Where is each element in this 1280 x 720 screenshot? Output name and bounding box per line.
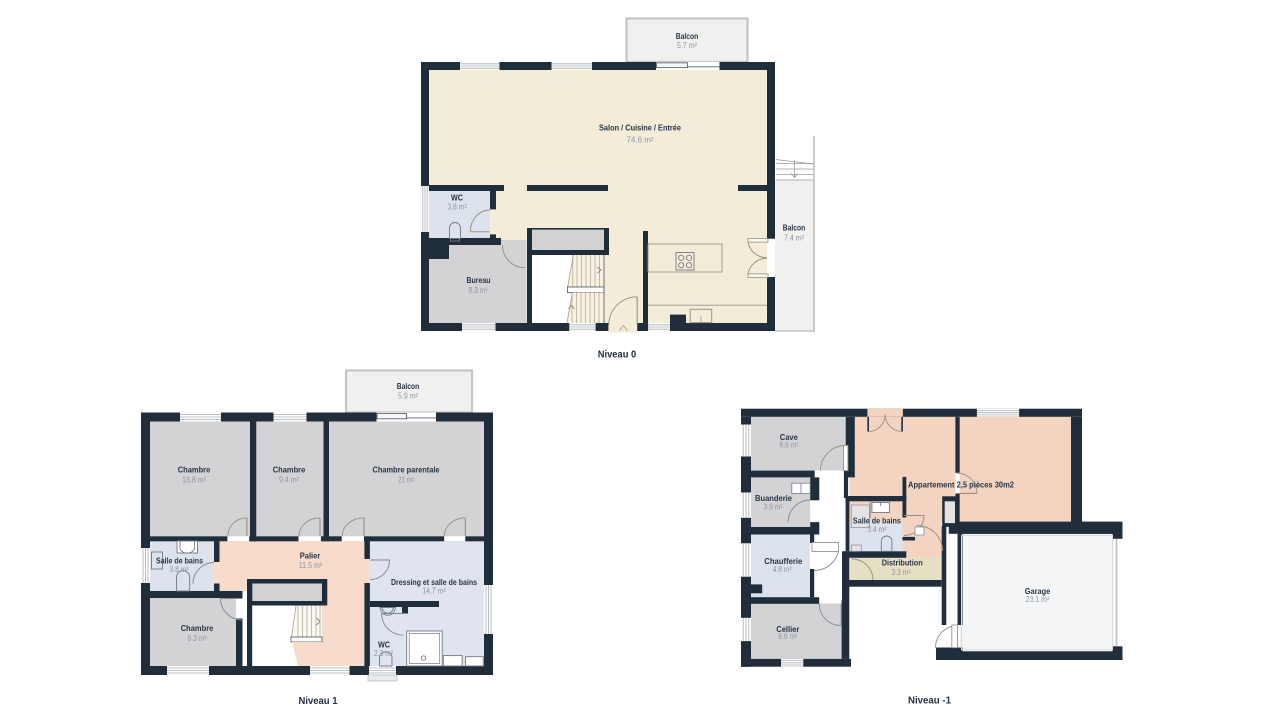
svg-text:Niveau 0: Niveau 0 [598,350,637,361]
svg-text:3.4 m²: 3.4 m² [867,525,886,534]
svg-text:13.8 m²: 13.8 m² [182,475,206,484]
svg-text:6.6 m²: 6.6 m² [780,441,799,450]
svg-text:9.4 m²: 9.4 m² [279,475,299,484]
svg-text:Appartement 2,5 pièces 30m2: Appartement 2,5 pièces 30m2 [908,480,1014,490]
svg-text:WC: WC [451,193,463,203]
svg-text:14.7 m²: 14.7 m² [422,586,446,595]
svg-text:4.8 m²: 4.8 m² [773,565,792,574]
svg-text:Chambre: Chambre [178,464,211,474]
svg-text:Chambre: Chambre [273,464,306,474]
svg-text:2.3 m²: 2.3 m² [374,649,393,658]
svg-text:3.3 m²: 3.3 m² [892,568,911,577]
svg-text:Salle de bains: Salle de bains [156,555,203,565]
svg-text:Salle de bains: Salle de bains [853,516,901,526]
svg-text:Salon / Cuisine / Entrée: Salon / Cuisine / Entrée [599,123,681,133]
svg-text:21 m²: 21 m² [398,475,414,484]
svg-text:3.8 m²: 3.8 m² [170,565,189,574]
svg-text:3.9 m²: 3.9 m² [764,502,783,511]
svg-text:6.6 m²: 6.6 m² [778,632,797,641]
svg-text:7.4 m²: 7.4 m² [784,234,804,243]
svg-text:Balcon: Balcon [676,31,699,41]
svg-text:WC: WC [378,639,390,649]
svg-text:5.7 m²: 5.7 m² [677,41,697,50]
svg-text:Balcon: Balcon [397,381,420,391]
svg-text:23.1 m²: 23.1 m² [1026,595,1050,604]
svg-text:Distribution: Distribution [882,558,923,568]
svg-text:Chambre: Chambre [181,623,214,633]
svg-text:Balcon: Balcon [783,223,806,233]
svg-text:3.8 m²: 3.8 m² [447,202,467,211]
svg-text:Bureau: Bureau [467,275,491,285]
svg-text:Palier: Palier [300,551,321,561]
svg-text:Niveau 1: Niveau 1 [299,696,339,707]
svg-text:5.9 m²: 5.9 m² [398,391,418,400]
svg-text:Chambre parentale: Chambre parentale [373,464,440,474]
svg-text:11.5 m²: 11.5 m² [299,561,323,570]
svg-text:Niveau -1: Niveau -1 [908,696,952,707]
svg-text:74.6 m²: 74.6 m² [627,135,654,144]
svg-text:8.3 m²: 8.3 m² [188,634,207,643]
svg-text:8.3 m²: 8.3 m² [469,286,488,295]
